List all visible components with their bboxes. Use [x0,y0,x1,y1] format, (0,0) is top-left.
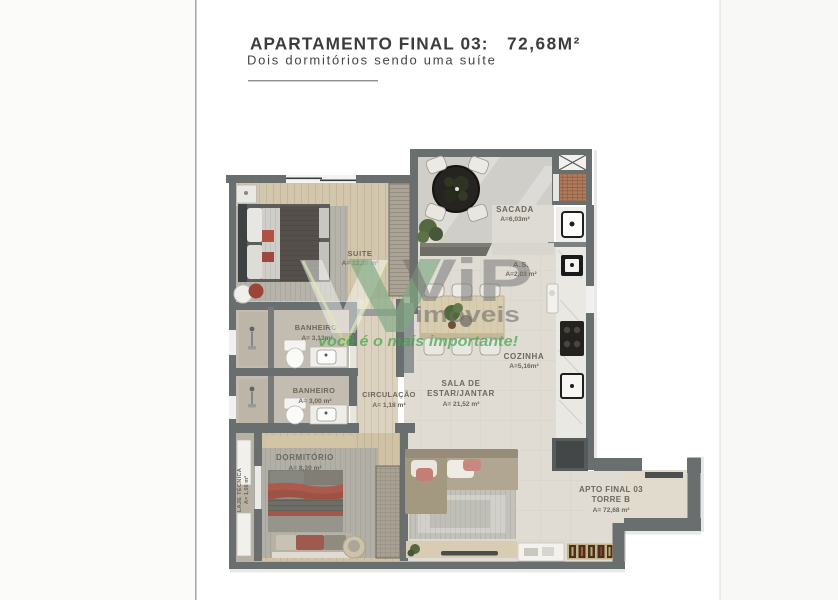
svg-text:SUITE: SUITE [347,249,372,258]
svg-text:A= 8,39 m²: A= 8,39 m² [288,465,322,472]
svg-text:ESTAR/JANTAR: ESTAR/JANTAR [427,389,495,398]
svg-text:SALA DE: SALA DE [441,379,480,388]
svg-text:TORRE B: TORRE B [592,495,631,504]
svg-text:APARTAMENTO FINAL 03:: APARTAMENTO FINAL 03: [250,33,489,53]
svg-text:A= 1,18 m²: A= 1,18 m² [372,402,406,409]
svg-text:Dois dormitórios sendo uma suí: Dois dormitórios sendo uma suíte [247,52,497,67]
svg-text:A= 72,68 m²: A= 72,68 m² [593,507,631,514]
svg-text:LAJE TÉCNICA: LAJE TÉCNICA [235,468,243,512]
svg-text:CIRCULAÇÃO: CIRCULAÇÃO [362,390,416,399]
svg-text:A=6,03m²: A=6,03m² [500,216,530,223]
svg-text:A= 1,66 m²: A= 1,66 m² [243,476,250,504]
svg-text:imóveis: imóveis [415,302,520,327]
svg-text:você é o mais importante!: você é o mais importante! [318,333,518,350]
svg-text:A= 21,52 m²: A= 21,52 m² [443,401,481,408]
svg-text:BANHEIRO: BANHEIRO [293,386,336,395]
svg-text:DORMITÓRIO: DORMITÓRIO [276,453,334,462]
svg-text:COZINHA: COZINHA [504,352,545,361]
svg-text:APTO FINAL 03: APTO FINAL 03 [579,485,643,494]
svg-text:A= 3,00 m²: A= 3,00 m² [298,398,332,405]
svg-text:A=5,16m²: A=5,16m² [509,363,539,370]
svg-text:SACADA: SACADA [496,205,534,214]
svg-text:72,68M²: 72,68M² [507,33,581,53]
